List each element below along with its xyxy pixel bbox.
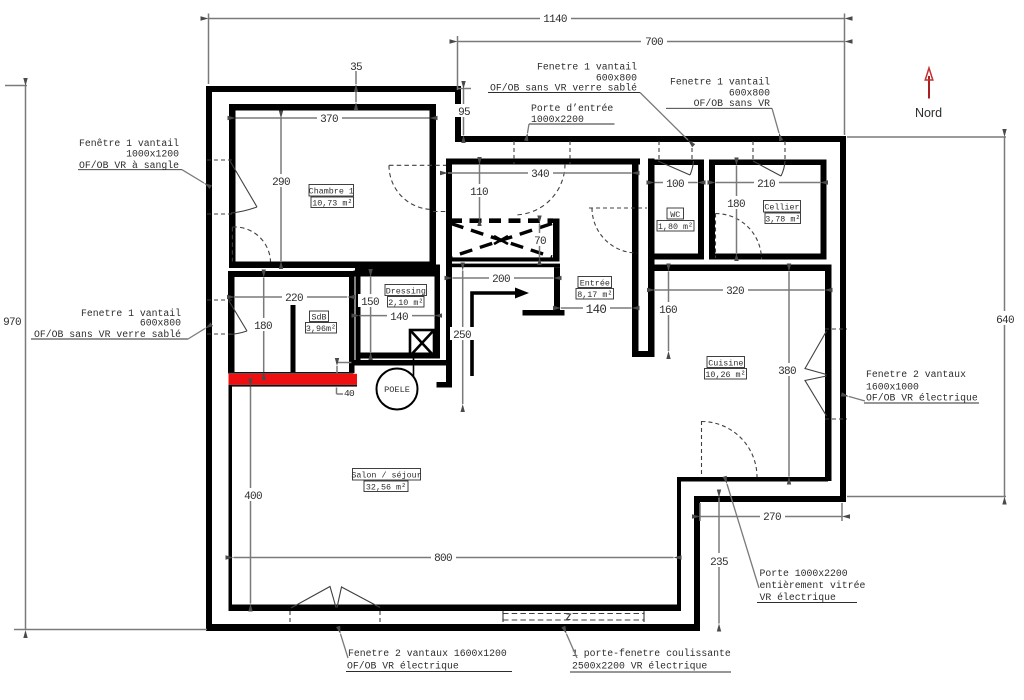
svg-text:Chambre 1: Chambre 1 bbox=[309, 187, 354, 197]
svg-text:340: 340 bbox=[531, 169, 549, 181]
svg-text:POELE: POELE bbox=[384, 385, 410, 395]
svg-text:40: 40 bbox=[344, 388, 355, 399]
svg-text:Porte d’entrée: Porte d’entrée bbox=[531, 103, 613, 114]
svg-text:290: 290 bbox=[272, 177, 290, 189]
svg-text:600x800: 600x800 bbox=[729, 88, 770, 99]
svg-text:150: 150 bbox=[361, 297, 379, 309]
svg-text:Cuisine: Cuisine bbox=[708, 359, 743, 369]
svg-text:95: 95 bbox=[458, 107, 470, 119]
svg-text:160: 160 bbox=[659, 305, 677, 317]
svg-text:Entrée: Entrée bbox=[580, 279, 610, 289]
svg-text:1000x2200: 1000x2200 bbox=[531, 114, 584, 125]
svg-text:3,96m²: 3,96m² bbox=[306, 324, 336, 334]
svg-text:Dressing: Dressing bbox=[386, 287, 426, 297]
svg-text:Porte 1000x2200: Porte 1000x2200 bbox=[760, 568, 848, 579]
svg-text:Fenetre 1 vantail: Fenetre 1 vantail bbox=[537, 62, 637, 73]
svg-text:800: 800 bbox=[434, 553, 452, 565]
svg-text:700: 700 bbox=[645, 37, 663, 49]
svg-text:WC: WC bbox=[670, 210, 680, 220]
svg-text:Cellier: Cellier bbox=[764, 203, 799, 213]
svg-text:220: 220 bbox=[285, 293, 303, 305]
svg-text:OF/OB sans VR verre sablé: OF/OB sans VR verre sablé bbox=[34, 329, 181, 340]
svg-text:180: 180 bbox=[254, 321, 272, 333]
svg-text:400: 400 bbox=[244, 491, 262, 503]
svg-text:140: 140 bbox=[390, 312, 408, 324]
svg-text:OF/OB VR électrique: OF/OB VR électrique bbox=[347, 661, 459, 672]
svg-text:OF/OB sans VR verre sablé: OF/OB sans VR verre sablé bbox=[490, 83, 637, 94]
svg-text:8,17 m²: 8,17 m² bbox=[577, 290, 612, 300]
svg-text:100: 100 bbox=[666, 179, 684, 191]
svg-text:970: 970 bbox=[3, 317, 21, 329]
svg-text:32,56 m²: 32,56 m² bbox=[366, 483, 406, 493]
svg-text:10,73 m²: 10,73 m² bbox=[312, 199, 352, 209]
svg-text:Salon / séjour: Salon / séjour bbox=[351, 471, 421, 481]
svg-text:OF/OB VR électrique: OF/OB VR électrique bbox=[866, 393, 978, 404]
svg-text:1140: 1140 bbox=[543, 14, 567, 26]
svg-text:140: 140 bbox=[586, 303, 607, 317]
svg-text:Fenêtre 1 vantail: Fenêtre 1 vantail bbox=[79, 138, 179, 149]
svg-text:210: 210 bbox=[757, 179, 775, 191]
svg-text:1000x1200: 1000x1200 bbox=[126, 149, 179, 160]
svg-text:entièrement vitrée: entièrement vitrée bbox=[760, 580, 866, 591]
svg-text:OF/OB sans VR: OF/OB sans VR bbox=[694, 98, 771, 109]
svg-text:180: 180 bbox=[727, 199, 745, 211]
svg-text:Fenetre 1 vantail: Fenetre 1 vantail bbox=[670, 77, 770, 88]
svg-text:370: 370 bbox=[320, 114, 338, 126]
svg-text:10,26 m²: 10,26 m² bbox=[705, 370, 745, 380]
svg-text:2500x2200 VR électrique: 2500x2200 VR électrique bbox=[572, 661, 707, 672]
svg-text:Nord: Nord bbox=[915, 106, 942, 120]
svg-text:35: 35 bbox=[350, 62, 362, 74]
svg-text:110: 110 bbox=[470, 187, 488, 199]
svg-text:2,10 m²: 2,10 m² bbox=[388, 298, 423, 308]
svg-text:VR électrique: VR électrique bbox=[760, 592, 837, 603]
svg-text:Fenetre 2 vantaux 1600x1200: Fenetre 2 vantaux 1600x1200 bbox=[348, 648, 507, 659]
svg-text:3,78 m²: 3,78 m² bbox=[765, 215, 800, 225]
svg-text:380: 380 bbox=[778, 366, 796, 378]
svg-text:235: 235 bbox=[710, 557, 728, 569]
svg-text:270: 270 bbox=[763, 512, 781, 524]
svg-text:SdB: SdB bbox=[311, 313, 326, 323]
svg-text:1 porte-fenetre coulissante: 1 porte-fenetre coulissante bbox=[572, 648, 731, 659]
svg-text:640: 640 bbox=[996, 315, 1014, 327]
svg-text:250: 250 bbox=[453, 330, 471, 342]
svg-text:320: 320 bbox=[726, 286, 744, 298]
svg-text:70: 70 bbox=[534, 236, 546, 248]
svg-text:1,80 m²: 1,80 m² bbox=[658, 222, 693, 232]
svg-text:Fenetre 2 vantaux: Fenetre 2 vantaux bbox=[866, 369, 966, 380]
svg-text:1600x1000: 1600x1000 bbox=[866, 382, 919, 393]
svg-text:600x800: 600x800 bbox=[140, 318, 181, 329]
svg-text:200: 200 bbox=[492, 274, 510, 286]
